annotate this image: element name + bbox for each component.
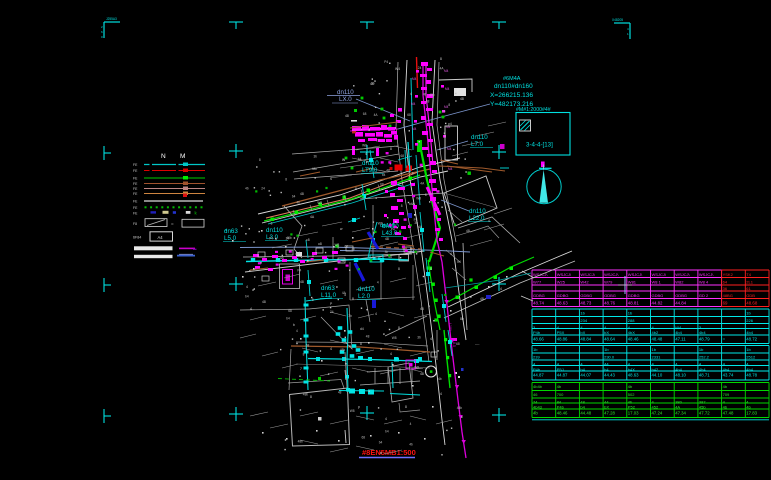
svg-text:WSJCJ\: WSJCJ\ [699, 272, 714, 277]
svg-text:1b: 1b [580, 311, 585, 316]
svg-text:FE: FE [133, 187, 138, 191]
svg-text:8: 8 [412, 172, 414, 176]
svg-text:48.74: 48.74 [533, 300, 545, 305]
svg-text:4b4: 4b4 [675, 330, 682, 335]
svg-text:17.03: 17.03 [628, 411, 639, 416]
svg-text:P4: P4 [384, 60, 388, 64]
svg-text:4b: 4b [723, 384, 728, 389]
svg-text:W8: W8 [378, 222, 383, 226]
svg-text:288: 288 [628, 318, 635, 323]
svg-text:p: p [358, 405, 360, 409]
svg-text:W8: W8 [362, 143, 367, 147]
svg-text:8: 8 [310, 395, 312, 399]
svg-text:4: 4 [250, 307, 252, 311]
svg-text:LX.0: LX.0 [339, 96, 352, 103]
svg-text:3b: 3b [414, 221, 418, 225]
svg-text:GD 2: GD 2 [699, 293, 709, 298]
svg-text:48: 48 [466, 229, 470, 233]
svg-text:6F84: 6F84 [133, 236, 141, 240]
svg-text:4: 4 [342, 259, 344, 263]
svg-text:48.81: 48.81 [628, 300, 640, 305]
svg-text:4b4: 4b4 [746, 367, 753, 372]
svg-text:48: 48 [338, 391, 342, 395]
svg-text:4bX: 4bX [628, 330, 635, 335]
svg-text:b4: b4 [286, 316, 290, 320]
svg-text:4b: 4b [628, 384, 633, 389]
svg-text:48.68: 48.68 [746, 300, 758, 305]
svg-text:W8 4: W8 4 [699, 279, 709, 284]
svg-text:4b: 4b [245, 187, 249, 191]
svg-text:48: 48 [300, 280, 304, 284]
svg-text:24: 24 [376, 139, 380, 143]
svg-text:2512: 2512 [746, 355, 756, 360]
svg-text:b4: b4 [292, 195, 296, 199]
svg-text:L7.0: L7.0 [471, 141, 484, 148]
svg-text:WSJCJ\: WSJCJ\ [652, 272, 667, 277]
svg-text:3b: 3b [371, 82, 375, 86]
svg-text:W42: W42 [580, 279, 589, 284]
svg-text:4b: 4b [746, 405, 751, 410]
svg-text:L5.0: L5.0 [224, 235, 237, 242]
svg-text:4A: 4A [310, 215, 315, 219]
svg-text:48.64: 48.64 [604, 337, 615, 342]
svg-text:1b: 1b [533, 347, 538, 352]
svg-text:68: 68 [362, 436, 366, 440]
svg-text:4A: 4A [418, 225, 423, 229]
svg-text:4: 4 [299, 251, 301, 255]
svg-text:M4: M4 [447, 147, 452, 151]
svg-text:68: 68 [401, 154, 405, 158]
svg-text:8: 8 [401, 204, 403, 208]
svg-text:44.10: 44.10 [652, 373, 663, 378]
svg-text:8: 8 [405, 405, 407, 409]
svg-text:234: 234 [580, 318, 587, 323]
svg-text:Y=482173.216: Y=482173.216 [490, 101, 533, 108]
svg-text:4b: 4b [723, 405, 728, 410]
svg-text:b: b [293, 323, 295, 327]
svg-text:48: 48 [386, 169, 390, 173]
svg-text:24: 24 [261, 186, 265, 190]
svg-text:GDBG: GDBG [604, 293, 616, 298]
svg-text:68: 68 [306, 344, 310, 348]
svg-text:48.10: 48.10 [675, 373, 686, 378]
svg-text:4b4: 4b4 [746, 330, 753, 335]
svg-text:c8: c8 [306, 238, 310, 242]
svg-text:47.11: 47.11 [675, 337, 686, 342]
svg-text:1b: 1b [604, 347, 609, 352]
svg-text:M4: M4 [444, 69, 449, 73]
svg-text:8: 8 [448, 103, 450, 107]
svg-text:47.72: 47.72 [699, 411, 710, 416]
svg-text:4b43: 4b43 [533, 405, 543, 410]
svg-text:8b: 8b [460, 317, 464, 321]
svg-text:W8: W8 [416, 197, 421, 201]
svg-text:502: 502 [628, 392, 635, 397]
svg-text:2L1: 2L1 [746, 279, 753, 284]
svg-text:W8: W8 [414, 365, 419, 369]
svg-text:48.46: 48.46 [628, 337, 639, 342]
svg-text:36: 36 [723, 286, 728, 291]
svg-text:48.86: 48.86 [557, 337, 568, 342]
svg-text:X=266215.136: X=266215.136 [490, 92, 533, 99]
svg-text:44.48: 44.48 [580, 411, 591, 416]
svg-text:J255A3: J255A3 [106, 17, 117, 21]
svg-text:dn110: dn110 [337, 89, 354, 96]
svg-text:4b: 4b [557, 384, 562, 389]
svg-text:o8: o8 [318, 242, 322, 246]
svg-text:WSJCJ\: WSJCJ\ [628, 272, 643, 277]
svg-text:F: F [457, 89, 459, 93]
svg-text:4: 4 [450, 252, 452, 256]
svg-text:44.84: 44.84 [675, 300, 687, 305]
svg-text:48: 48 [366, 334, 370, 338]
svg-text:44.87: 44.87 [557, 373, 568, 378]
svg-text:4: 4 [488, 219, 490, 223]
svg-text:L181: L181 [448, 323, 452, 331]
svg-text:YSK2: YSK2 [723, 272, 734, 277]
svg-text:bX: bX [604, 330, 609, 335]
svg-text:68: 68 [288, 309, 292, 313]
svg-text:252.2: 252.2 [699, 355, 710, 360]
svg-text:W25: W25 [557, 279, 566, 284]
svg-text:48.73: 48.73 [580, 300, 592, 305]
svg-text:M4: M4 [412, 77, 417, 81]
svg-text:8: 8 [430, 267, 432, 271]
svg-text:4: 4 [430, 337, 432, 341]
svg-text:dn63: dn63 [321, 285, 335, 292]
svg-text:FE: FE [133, 177, 138, 181]
svg-text:8: 8 [352, 297, 354, 301]
svg-text:44.82: 44.82 [652, 300, 664, 305]
svg-text:48.79: 48.79 [699, 337, 710, 342]
svg-text:4b: 4b [533, 411, 538, 416]
svg-text:44.43: 44.43 [604, 373, 615, 378]
svg-text:48b: 48b [457, 406, 463, 410]
svg-text:48: 48 [300, 192, 304, 196]
svg-text:4: 4 [410, 92, 412, 96]
svg-text:L2.0: L2.0 [358, 293, 371, 300]
svg-text:48: 48 [420, 372, 424, 376]
svg-text:dn110: dn110 [471, 134, 488, 141]
svg-text:48.66: 48.66 [533, 337, 544, 342]
svg-text:GDBG: GDBG [580, 293, 592, 298]
svg-text:48b: 48b [303, 393, 309, 397]
svg-text:#6M4A: #6M4A [503, 76, 521, 82]
svg-text:4: 4 [385, 417, 387, 421]
svg-text:L22.0: L22.0 [469, 215, 485, 222]
svg-text:48: 48 [480, 297, 484, 301]
svg-text:4b4b: 4b4b [533, 384, 543, 389]
svg-text:47.48: 47.48 [723, 411, 734, 416]
svg-text:44: 44 [604, 362, 609, 367]
svg-text:4: 4 [330, 347, 332, 351]
svg-text:3b: 3b [351, 247, 355, 251]
svg-text:68: 68 [345, 244, 349, 248]
svg-text:68: 68 [363, 112, 367, 116]
svg-text:b4: b4 [382, 173, 386, 177]
svg-text:W82: W82 [675, 279, 684, 284]
svg-text:T4: T4 [746, 272, 751, 277]
svg-text:48b: 48b [286, 236, 292, 240]
svg-text:d4: d4 [360, 327, 364, 331]
svg-text:dn110: dn110 [469, 208, 486, 215]
svg-text:69: 69 [723, 300, 728, 305]
svg-text:61: 61 [746, 286, 751, 291]
svg-text:4: 4 [390, 352, 392, 356]
svg-text:M4: M4 [448, 167, 453, 171]
svg-text:WSJCJ\: WSJCJ\ [557, 272, 572, 277]
svg-text:4: 4 [440, 392, 442, 396]
svg-text:4A: 4A [675, 405, 680, 410]
svg-text:3b: 3b [417, 335, 421, 339]
svg-text:8: 8 [398, 326, 400, 330]
svg-text:48.84: 48.84 [580, 337, 591, 342]
svg-text:4: 4 [500, 287, 502, 291]
svg-text:4b: 4b [409, 443, 413, 447]
svg-text:A4: A4 [158, 235, 164, 240]
svg-text:L11.0: L11.0 [321, 292, 337, 299]
svg-text:68: 68 [407, 113, 411, 117]
svg-text:WSJCJ\: WSJCJ\ [675, 272, 690, 277]
svg-text:8: 8 [398, 267, 400, 271]
svg-text:48b: 48b [340, 348, 346, 352]
svg-text:W79: W79 [604, 279, 613, 284]
svg-text:48: 48 [262, 300, 266, 304]
svg-text:dn110: dn110 [266, 227, 283, 234]
svg-text:b42: b42 [652, 367, 659, 372]
svg-text:3b: 3b [348, 314, 352, 318]
svg-text:47.24: 47.24 [652, 411, 663, 416]
svg-text:24: 24 [418, 66, 422, 70]
svg-text:4: 4 [410, 422, 412, 426]
svg-text:4: 4 [330, 177, 332, 181]
svg-text:48.63: 48.63 [557, 300, 569, 305]
svg-text:dn110: dn110 [362, 160, 379, 167]
svg-text:M: M [180, 153, 185, 160]
svg-text:4b4: 4b4 [699, 330, 706, 335]
svg-text:43.74: 43.74 [723, 373, 734, 378]
svg-text:M4: M4 [445, 87, 450, 91]
svg-text:W81: W81 [628, 279, 637, 284]
svg-text:48.76: 48.76 [604, 300, 616, 305]
svg-text:P52: P52 [628, 405, 636, 410]
svg-text:WSJCJ\: WSJCJ\ [604, 272, 619, 277]
svg-text:X48205: X48205 [612, 18, 623, 22]
svg-text:45b: 45b [699, 405, 706, 410]
svg-text:48: 48 [345, 114, 349, 118]
svg-text:FE: FE [133, 200, 138, 204]
svg-text:LT9.0: LT9.0 [362, 167, 378, 174]
svg-text:b4: b4 [604, 367, 609, 372]
svg-text:1b: 1b [746, 311, 751, 316]
svg-text:3b: 3b [385, 250, 389, 254]
svg-text:o: o [225, 228, 227, 232]
svg-text:48.46: 48.46 [557, 411, 568, 416]
svg-text:W77: W77 [533, 279, 542, 284]
svg-text:M4: M4 [412, 127, 417, 131]
svg-text:W8: W8 [350, 409, 355, 413]
svg-text:4: 4 [410, 247, 412, 251]
svg-text:68: 68 [456, 342, 460, 346]
svg-text:1b: 1b [746, 347, 751, 352]
svg-text:bX: bX [580, 330, 585, 335]
svg-text:P4: P4 [269, 237, 273, 241]
svg-text:48: 48 [385, 237, 389, 241]
svg-text:8: 8 [285, 177, 287, 181]
svg-text:8: 8 [271, 221, 273, 225]
svg-text:68: 68 [380, 183, 384, 187]
svg-text:226: 226 [746, 318, 753, 323]
svg-text:P4: P4 [297, 268, 301, 272]
svg-text:47.34: 47.34 [675, 411, 686, 416]
svg-text:P4b: P4b [533, 330, 541, 335]
svg-text:47.28: 47.28 [604, 411, 615, 416]
svg-text:24: 24 [330, 310, 334, 314]
svg-text:4b: 4b [438, 377, 442, 381]
svg-text:452: 452 [652, 405, 659, 410]
svg-text:FE: FE [133, 206, 138, 210]
svg-text:68: 68 [426, 99, 430, 103]
svg-text:dn110: dn110 [358, 286, 375, 293]
svg-text:WSJCJ\: WSJCJ\ [580, 272, 595, 277]
svg-text:44.87: 44.87 [533, 373, 544, 378]
svg-text:8: 8 [312, 298, 314, 302]
svg-text:GDBG: GDBG [628, 293, 640, 298]
svg-text:17.83: 17.83 [746, 411, 757, 416]
svg-text:1b: 1b [652, 347, 657, 352]
svg-text:b4: b4 [245, 295, 249, 299]
svg-text:FE: FE [133, 212, 138, 216]
svg-text:4b4: 4b4 [723, 367, 730, 372]
svg-text:FE: FE [133, 169, 138, 173]
svg-text:48.63: 48.63 [628, 373, 639, 378]
svg-text:b4X: b4X [628, 367, 635, 372]
svg-text:44.07: 44.07 [580, 373, 591, 378]
svg-text:P5X: P5X [557, 330, 565, 335]
svg-text:48.71: 48.71 [699, 373, 710, 378]
svg-text:GDBG: GDBG [652, 293, 664, 298]
svg-text:4b: 4b [423, 92, 427, 96]
svg-text:W8 1: W8 1 [652, 279, 662, 284]
svg-text:GDBG: GDBG [533, 293, 545, 298]
svg-text:8: 8 [440, 57, 442, 61]
svg-text:48b: 48b [298, 439, 304, 443]
svg-text:1b: 1b [628, 311, 633, 316]
svg-text:8: 8 [425, 193, 427, 197]
svg-text:b4: b4 [580, 405, 585, 410]
svg-text:8: 8 [337, 245, 339, 249]
svg-text:bX: bX [604, 405, 609, 410]
svg-text:48b: 48b [429, 93, 435, 97]
svg-text:8: 8 [259, 158, 261, 162]
svg-text:N: N [161, 153, 166, 160]
svg-text:46: 46 [533, 392, 538, 397]
svg-text:b4: b4 [457, 260, 461, 264]
svg-text:4: 4 [296, 329, 298, 333]
svg-text:48.78: 48.78 [746, 373, 757, 378]
svg-text:64: 64 [723, 279, 728, 284]
svg-text:4: 4 [246, 285, 248, 289]
svg-text:GDBG: GDBG [675, 293, 687, 298]
svg-text:48: 48 [420, 307, 424, 311]
svg-text:FE: FE [133, 182, 138, 186]
svg-text:8: 8 [360, 342, 362, 346]
svg-text:GDBG: GDBG [557, 293, 569, 298]
svg-text:P5J: P5J [557, 367, 564, 372]
svg-text:dn110#dn160: dn110#dn160 [494, 83, 533, 90]
svg-text:7: 7 [300, 367, 302, 371]
svg-text:48.48: 48.48 [652, 337, 663, 342]
svg-text:W8: W8 [392, 336, 397, 340]
svg-text:GDB: GDB [746, 293, 755, 298]
svg-text:4b4: 4b4 [675, 367, 682, 372]
svg-text:----: ---- [475, 342, 480, 346]
svg-text:FE: FE [133, 192, 138, 196]
svg-text:F8: F8 [133, 222, 137, 226]
svg-text:=: = [171, 221, 174, 226]
svg-text:P4b: P4b [557, 405, 565, 410]
svg-text:2331: 2331 [652, 355, 662, 360]
svg-text:3-4-4-[13]: 3-4-4-[13] [526, 142, 553, 149]
svg-text:3b: 3b [314, 155, 318, 159]
svg-text:48b: 48b [312, 167, 318, 171]
svg-text:4b4: 4b4 [699, 367, 706, 372]
svg-text:P4b: P4b [533, 367, 541, 372]
svg-text:b4: b4 [385, 429, 389, 433]
svg-text:239: 239 [533, 355, 540, 360]
svg-text:4: 4 [365, 152, 367, 156]
svg-text:W4: W4 [395, 67, 400, 71]
svg-text:4b2: 4b2 [652, 330, 659, 335]
svg-text:8: 8 [303, 353, 305, 357]
svg-text:b4: b4 [379, 441, 383, 445]
svg-text:M4: M4 [411, 102, 416, 106]
svg-text:4: 4 [375, 312, 377, 316]
svg-text:4b: 4b [296, 201, 300, 205]
svg-text:b4: b4 [580, 367, 585, 372]
svg-text:1b: 1b [699, 347, 704, 352]
svg-text:4: 4 [377, 280, 379, 284]
svg-text:230.0: 230.0 [604, 355, 615, 360]
svg-text:FE: FE [133, 163, 138, 167]
svg-text:48.72: 48.72 [746, 337, 757, 342]
svg-text:709: 709 [723, 392, 730, 397]
svg-text:48: 48 [460, 97, 464, 101]
svg-text:700: 700 [557, 392, 564, 397]
svg-text:8: 8 [355, 187, 357, 191]
svg-text:b4: b4 [358, 157, 362, 161]
svg-text:W8: W8 [317, 201, 322, 205]
svg-text:8: 8 [390, 147, 392, 151]
svg-text:48BG: 48BG [723, 293, 733, 298]
svg-text:b4: b4 [442, 109, 446, 113]
svg-text:p4: p4 [448, 122, 452, 126]
